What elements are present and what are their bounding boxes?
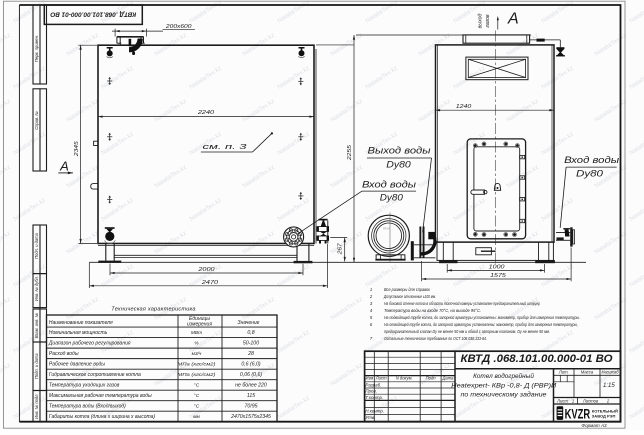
svg-text:Лист: Лист bbox=[556, 399, 568, 404]
svg-text:ЗАВОД РЭП: ЗАВОД РЭП bbox=[592, 414, 616, 419]
svg-text:Инв. № подл.: Инв. № подл. bbox=[34, 393, 39, 418]
svg-text:Взам. инв. №: Взам. инв. № bbox=[34, 312, 39, 338]
svg-text:1: 1 bbox=[370, 287, 372, 292]
svg-text:A: A bbox=[59, 159, 69, 174]
svg-text:2470: 2470 bbox=[201, 280, 220, 286]
svg-text:Heatexpert- КВр -0,8- Д (РВР)И: Heatexpert- КВр -0,8- Д (РВР)И bbox=[451, 383, 556, 390]
svg-text:На подводящей трубе котла, д: На подводящей трубе котла, до запорной а… bbox=[384, 315, 580, 320]
svg-text:%: % bbox=[194, 341, 199, 347]
svg-text:Справ. №: Справ. № bbox=[34, 111, 39, 130]
svg-text:1: 1 bbox=[572, 399, 574, 404]
svg-text:не более 220: не более 220 bbox=[235, 383, 267, 389]
svg-text:Утв.: Утв. bbox=[365, 415, 375, 420]
svg-text:по техническому задание: по техническому задание bbox=[461, 390, 547, 398]
svg-text:На отводящей трубе котла, до з: На отводящей трубе котла, до запорной ар… bbox=[384, 322, 578, 327]
svg-text:Подп: Подп bbox=[426, 376, 437, 381]
svg-text:предохранительный клапан Dу н: предохранительный клапан Dу не менее 50 … bbox=[384, 329, 550, 334]
svg-text:Рабочее давление воды: Рабочее давление воды bbox=[49, 362, 105, 368]
svg-text:°С: °С bbox=[194, 393, 200, 399]
svg-text:Вход воды: Вход воды bbox=[564, 155, 619, 165]
svg-text:Инв. № дубл.: Инв. № дубл. bbox=[34, 276, 39, 301]
svg-text:Dy80: Dy80 bbox=[386, 160, 411, 170]
svg-text:Масштаб: Масштаб bbox=[602, 370, 620, 375]
svg-text:0,8: 0,8 bbox=[247, 330, 254, 336]
svg-text:Все размеры для справок: Все размеры для справок bbox=[384, 287, 431, 292]
svg-text:1000: 1000 bbox=[489, 265, 506, 271]
svg-text:Допустимое отклонение ±100 мм: Допустимое отклонение ±100 мм. bbox=[383, 294, 436, 299]
svg-text:Диапазон рабочего регулировани: Диапазон рабочего регулирования bbox=[48, 341, 131, 347]
svg-text:Лит.: Лит. bbox=[558, 370, 569, 375]
svg-text:Температура воды на входе 70°: Температура воды на входе 70°С, на выход… bbox=[384, 308, 481, 313]
svg-text:Температура уходящих газов: Температура уходящих газов bbox=[49, 383, 120, 389]
svg-text:Гидравлическое сопротивление к: Гидравлическое сопротивление котла bbox=[49, 372, 141, 378]
svg-text:На боковой стенке котла в обла: На боковой стенке котла в области топочн… bbox=[384, 301, 541, 306]
svg-text:2345: 2345 bbox=[74, 140, 80, 157]
svg-text:Габариты котла (длина х ширина: Габариты котла (длина х ширина х высота) bbox=[49, 414, 156, 420]
svg-text:28: 28 bbox=[247, 351, 254, 357]
svg-text:70/95: 70/95 bbox=[245, 404, 258, 410]
svg-text:Температура воды (Вход/выход): Температура воды (Вход/выход) bbox=[49, 404, 126, 410]
svg-text:РВ-80: РВ-80 bbox=[383, 228, 391, 231]
svg-text:200х600: 200х600 bbox=[165, 24, 192, 30]
svg-text:0,6 (6,0): 0,6 (6,0) bbox=[241, 362, 261, 368]
svg-text:°С: °С bbox=[194, 383, 200, 389]
svg-text:газов: газов bbox=[485, 14, 491, 28]
svg-text:Котел водогрейный: Котел водогрейный bbox=[473, 372, 534, 380]
svg-text:Значение: Значение bbox=[238, 320, 260, 326]
svg-text:Номинальная мощность: Номинальная мощность bbox=[49, 330, 108, 336]
svg-text:Перв. примен.: Перв. примен. bbox=[34, 35, 39, 62]
svg-text:мм: мм bbox=[193, 415, 200, 420]
svg-text:Дата: Дата bbox=[441, 376, 454, 381]
svg-text:267: 267 bbox=[338, 242, 344, 255]
svg-text:2255: 2255 bbox=[347, 144, 353, 161]
svg-text:МВт: МВт bbox=[191, 330, 202, 336]
svg-text:0,06 (0,6): 0,06 (0,6) bbox=[240, 372, 262, 378]
svg-text:Т.контр.: Т.контр. bbox=[365, 395, 383, 400]
svg-text:м3/ч: м3/ч bbox=[192, 351, 202, 357]
svg-text:Масса: Масса bbox=[581, 370, 594, 375]
svg-text:КВТД .068.101.00.000-01 ВО: КВТД .068.101.00.000-01 ВО bbox=[50, 10, 136, 17]
svg-text:Пров.: Пров. bbox=[365, 389, 377, 394]
svg-text:Вход воды: Вход воды bbox=[362, 179, 416, 189]
svg-text:2470х1575х2345: 2470х1575х2345 bbox=[230, 414, 271, 420]
svg-text:°С: °С bbox=[194, 404, 200, 410]
svg-text:Максимальная рабочая температу: Максимальная рабочая температура воды bbox=[49, 393, 152, 399]
svg-text:Наименование показателя: Наименование показателя bbox=[49, 320, 113, 326]
svg-text:Расход воды: Расход воды bbox=[49, 351, 79, 357]
svg-text:KVZR: KVZR bbox=[565, 406, 591, 421]
svg-text:115: 115 bbox=[247, 393, 255, 399]
svg-text:1240: 1240 bbox=[456, 104, 472, 110]
svg-text:Dy80: Dy80 bbox=[380, 193, 403, 203]
svg-text:2240: 2240 bbox=[197, 110, 216, 116]
svg-text:Остальные технические требован: Остальные технические требования по ОСТ … bbox=[384, 336, 487, 341]
svg-text:Листов: Листов bbox=[582, 399, 599, 404]
svg-text:2000: 2000 bbox=[197, 267, 216, 273]
svg-text:Техническая характеристика: Техническая характеристика bbox=[111, 306, 195, 312]
svg-text:выход: выход bbox=[478, 13, 484, 28]
svg-text:Формат A3: Формат A3 bbox=[581, 423, 607, 428]
svg-text:см. п. 3: см. п. 3 bbox=[203, 142, 247, 151]
svg-text:МПа (кгс/см2): МПа (кгс/см2) bbox=[178, 362, 216, 368]
svg-text:Выход воды: Выход воды bbox=[368, 145, 431, 155]
svg-text:МПа (кгс/см2): МПа (кгс/см2) bbox=[178, 372, 216, 378]
svg-text:измерения: измерения bbox=[187, 322, 212, 328]
svg-text:Dy80: Dy80 bbox=[576, 168, 603, 178]
svg-text:КВТД .068.101.00.000-01 ВО: КВТД .068.101.00.000-01 ВО bbox=[461, 353, 614, 365]
svg-text:Изм: Изм bbox=[366, 376, 374, 381]
svg-text:1:15: 1:15 bbox=[603, 383, 615, 389]
svg-text:Н.контр.: Н.контр. bbox=[365, 408, 384, 413]
svg-text:Разраб.: Разраб. bbox=[365, 382, 381, 387]
svg-text:N докум.: N докум. bbox=[396, 376, 413, 381]
svg-text:Подп. и дата: Подп. и дата bbox=[34, 232, 39, 258]
svg-text:50-100: 50-100 bbox=[243, 341, 259, 347]
svg-text:Лист: Лист bbox=[375, 376, 387, 381]
svg-text:1575: 1575 bbox=[490, 273, 507, 279]
svg-text:Подп. и дата: Подп. и дата bbox=[34, 353, 39, 379]
svg-text:A: A bbox=[507, 10, 519, 27]
